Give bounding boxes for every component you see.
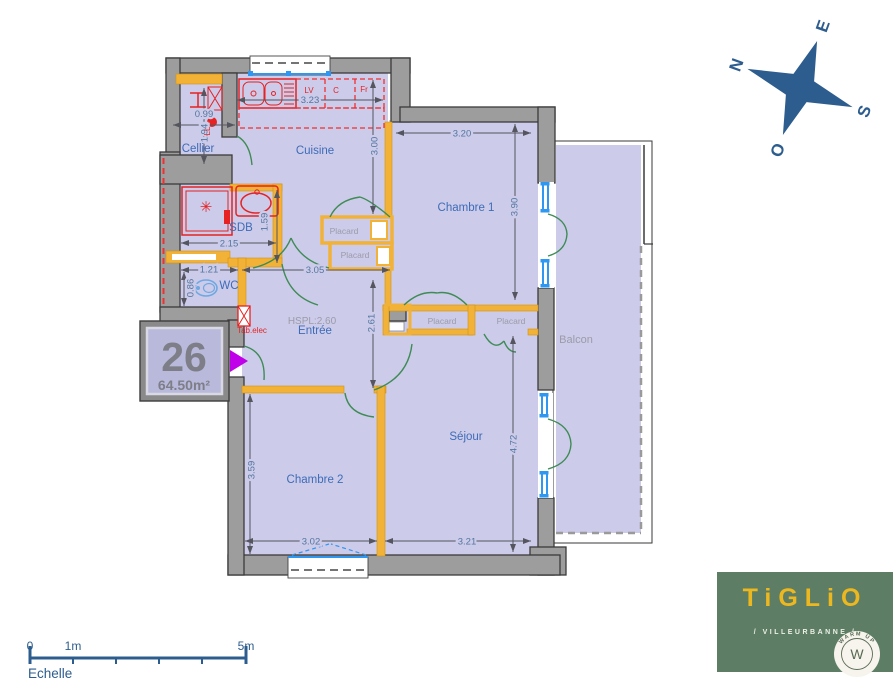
dim-chambre1-h: 3.90 [510, 198, 521, 217]
scale-zero: 0 [27, 639, 34, 653]
label-sdb: SDB [229, 222, 253, 234]
apartment-badge: 26 64.50m² [140, 321, 229, 401]
dim-sdb-w: 2.15 [220, 239, 239, 250]
label-fridge: Fr [360, 85, 368, 94]
label-placard-3: Placard [428, 316, 457, 326]
dim-wc-h: 0.86 [186, 279, 197, 298]
electrical-panel [238, 306, 250, 326]
label-placard-2: Placard [341, 250, 370, 260]
shower-head-symbol: ✳ [200, 199, 213, 216]
label-dishwasher: LV [304, 86, 314, 95]
dim-sejour-w: 3.21 [458, 537, 477, 548]
label-chambre1: Chambre 1 [438, 202, 495, 214]
label-chambre2: Chambre 2 [287, 474, 344, 486]
dim-chambre2-h: 3.59 [247, 461, 258, 480]
label-entree: Entrée [298, 325, 332, 337]
scale-1m: 1m [65, 639, 82, 653]
label-placard-4: Placard [497, 316, 526, 326]
label-washer: LL [203, 126, 212, 135]
dim-chambre1-w: 3.20 [453, 129, 472, 140]
label-wc: WC [219, 280, 238, 292]
badge-area: 64.50m² [158, 377, 210, 393]
dim-cellier-w: 0.99 [195, 109, 214, 120]
compass-west: O [767, 141, 789, 160]
dim-entree-h: 2.61 [367, 314, 378, 333]
badge-apartment-number: 26 [161, 334, 207, 380]
scale-5m: 5m [238, 639, 255, 653]
compass-south: S [854, 103, 876, 120]
seal-letter: W [850, 646, 864, 662]
label-cellier: Cellier [182, 143, 215, 155]
label-tab-elec: Tab.elec [237, 326, 267, 335]
dim-chambre2-w: 3.02 [302, 537, 321, 548]
dim-sejour-h: 4.72 [509, 435, 520, 454]
agency-brand-name: TiGLiO [717, 584, 893, 613]
scale-bar: 0 1m 5m Echelle [27, 639, 255, 681]
agency-seal-icon: WARM UP W [831, 628, 883, 680]
compass-rose-icon: N E S O [703, 0, 893, 183]
kitchen-window [248, 56, 331, 76]
dim-entree-w: 3.05 [306, 265, 325, 276]
label-sejour: Séjour [449, 431, 482, 443]
agency-logo: TiGLiO / VILLEURBANNE / WARM UP W [717, 572, 893, 672]
compass-east: E [812, 18, 834, 35]
dim-cuisine-w: 3.23 [301, 95, 320, 106]
label-cuisine: Cuisine [296, 145, 334, 157]
scale-label: Echelle [28, 666, 72, 681]
label-cooker: C [333, 86, 339, 95]
label-placard-1: Placard [330, 226, 359, 236]
floor-plan-page: ✳ [0, 0, 893, 690]
dim-wc-w: 1.21 [200, 265, 219, 276]
compass-north: N [726, 56, 748, 74]
dim-cuisine-h: 3.00 [370, 137, 381, 156]
label-balcon: Balcon [559, 334, 593, 346]
dim-sdb-h: 1.59 [260, 213, 271, 232]
